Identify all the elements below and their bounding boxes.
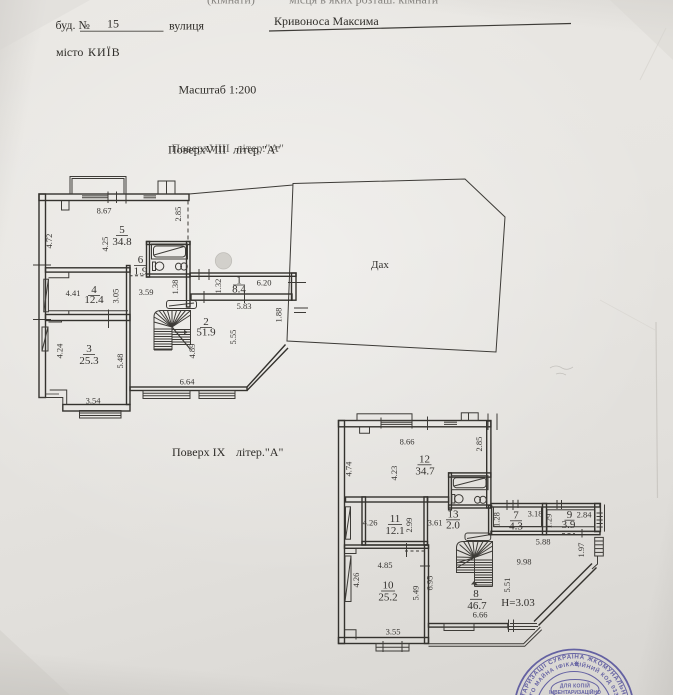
svg-text:ПоверхVIII: ПоверхVIII bbox=[172, 141, 230, 155]
svg-text:ДЛЯ КОПІЙ: ДЛЯ КОПІЙ bbox=[560, 682, 590, 690]
svg-text:літер."А": літер."А" bbox=[236, 445, 283, 459]
svg-text:2.0: 2.0 bbox=[446, 520, 460, 532]
svg-text:вулиця: вулиця bbox=[169, 19, 205, 33]
svg-text:3.61: 3.61 bbox=[428, 518, 443, 528]
svg-text:Дах: Дах bbox=[371, 259, 389, 271]
svg-text:34.8: 34.8 bbox=[112, 236, 132, 248]
svg-text:34.7: 34.7 bbox=[415, 466, 435, 478]
svg-text:КИЇВ: КИЇВ bbox=[88, 45, 121, 59]
svg-text:5.49: 5.49 bbox=[411, 586, 421, 601]
svg-text:літер."А": літер."А" bbox=[237, 141, 284, 155]
svg-text:2.85: 2.85 bbox=[173, 207, 183, 222]
svg-text:буд. №: буд. № bbox=[56, 18, 90, 32]
svg-text:1.97: 1.97 bbox=[576, 543, 586, 558]
svg-text:4.26: 4.26 bbox=[351, 573, 361, 588]
svg-text:8: 8 bbox=[473, 588, 479, 600]
svg-text:4.25: 4.25 bbox=[100, 237, 110, 252]
svg-text:6: 6 bbox=[138, 254, 144, 266]
svg-text:2.85: 2.85 bbox=[474, 437, 484, 452]
svg-text:10: 10 bbox=[383, 580, 395, 592]
svg-text:25.3: 25.3 bbox=[79, 355, 99, 367]
svg-text:3.55: 3.55 bbox=[386, 627, 401, 637]
svg-text:✳: ✳ bbox=[574, 660, 580, 668]
svg-text:3.9: 3.9 bbox=[562, 519, 576, 531]
svg-text:1.32: 1.32 bbox=[213, 279, 223, 294]
svg-text:3.59: 3.59 bbox=[139, 287, 154, 297]
svg-text:6.66: 6.66 bbox=[473, 610, 488, 620]
svg-text:4.23: 4.23 bbox=[389, 466, 399, 481]
svg-text:25.2: 25.2 bbox=[378, 592, 397, 604]
svg-text:4.41: 4.41 bbox=[66, 288, 81, 298]
svg-text:4.72: 4.72 bbox=[44, 234, 54, 249]
svg-text:6.20: 6.20 bbox=[257, 278, 272, 288]
svg-text:(кімнати): (кімнати) bbox=[207, 0, 255, 7]
svg-text:1.88: 1.88 bbox=[274, 308, 284, 323]
svg-text:місця в яких розташ. кімнати: місця в яких розташ. кімнати bbox=[289, 0, 439, 7]
svg-text:8.4: 8.4 bbox=[232, 284, 246, 296]
svg-text:5: 5 bbox=[119, 224, 125, 236]
svg-text:3.05: 3.05 bbox=[111, 289, 121, 304]
svg-text:51.9: 51.9 bbox=[196, 327, 216, 339]
svg-text:3: 3 bbox=[86, 343, 92, 355]
svg-text:12.4: 12.4 bbox=[84, 294, 104, 306]
svg-text:15: 15 bbox=[107, 17, 119, 31]
svg-text:1.28: 1.28 bbox=[492, 512, 502, 527]
svg-text:4.74: 4.74 bbox=[344, 461, 354, 477]
svg-text:Масштаб 1:200: Масштаб 1:200 bbox=[179, 83, 257, 97]
svg-text:1.38: 1.38 bbox=[170, 280, 180, 295]
svg-text:місто: місто bbox=[56, 45, 83, 59]
svg-text:Поверх IX: Поверх IX bbox=[172, 445, 226, 459]
svg-text:ІНВЕНТАРИЗАЦІЙНО: ІНВЕНТАРИЗАЦІЙНО bbox=[549, 688, 601, 695]
svg-text:6.95: 6.95 bbox=[425, 576, 435, 591]
svg-text:11: 11 bbox=[390, 513, 401, 525]
svg-text:6.64: 6.64 bbox=[180, 377, 196, 387]
svg-text:5.51: 5.51 bbox=[502, 578, 512, 593]
svg-text:9.98: 9.98 bbox=[517, 557, 532, 567]
svg-text:H=3.03: H=3.03 bbox=[501, 597, 535, 609]
svg-text:3.18: 3.18 bbox=[528, 509, 543, 519]
svg-text:12: 12 bbox=[419, 454, 430, 466]
svg-text:4.26: 4.26 bbox=[363, 518, 378, 528]
svg-text:12.1: 12.1 bbox=[385, 525, 404, 537]
svg-text:1.29: 1.29 bbox=[544, 514, 554, 529]
svg-text:4.24: 4.24 bbox=[55, 343, 65, 359]
svg-text:8.67: 8.67 bbox=[97, 206, 112, 216]
svg-text:5.55: 5.55 bbox=[228, 330, 238, 345]
svg-text:ЕНТАРИЗАЦІЇ СУКРАЇНА ЖКОМУНАЛЬ: ЕНТАРИЗАЦІЇ СУКРАЇНА ЖКОМУНАЛЬНЕ ПІДПРИ bbox=[0, 0, 630, 695]
svg-text:2.99: 2.99 bbox=[404, 518, 414, 533]
svg-text:5.48: 5.48 bbox=[115, 354, 125, 369]
svg-text:8.66: 8.66 bbox=[400, 437, 415, 447]
svg-text:4.89: 4.89 bbox=[187, 344, 197, 359]
svg-text:5.88: 5.88 bbox=[536, 537, 551, 547]
svg-text:2.84: 2.84 bbox=[577, 510, 593, 520]
svg-text:Кривоноса Максима: Кривоноса Максима bbox=[274, 14, 379, 28]
svg-text:5.83: 5.83 bbox=[237, 301, 252, 311]
svg-text:4.85: 4.85 bbox=[378, 560, 393, 570]
svg-text:3.54: 3.54 bbox=[86, 396, 102, 406]
svg-text:4.3: 4.3 bbox=[509, 520, 523, 532]
